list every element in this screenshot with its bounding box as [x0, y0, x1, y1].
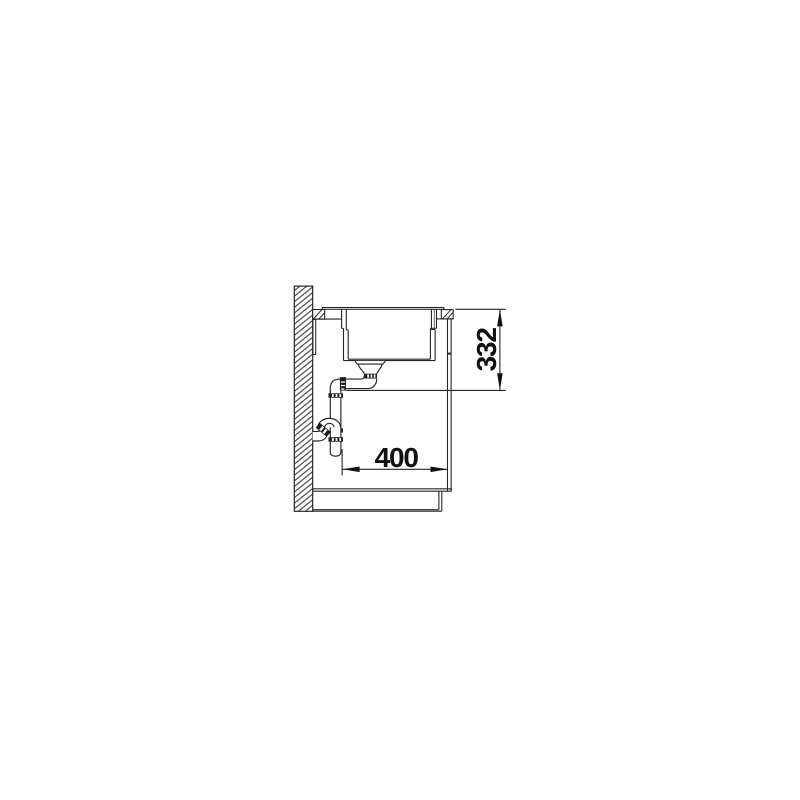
svg-text:400: 400 [375, 442, 419, 473]
svg-text:332: 332 [471, 328, 502, 372]
